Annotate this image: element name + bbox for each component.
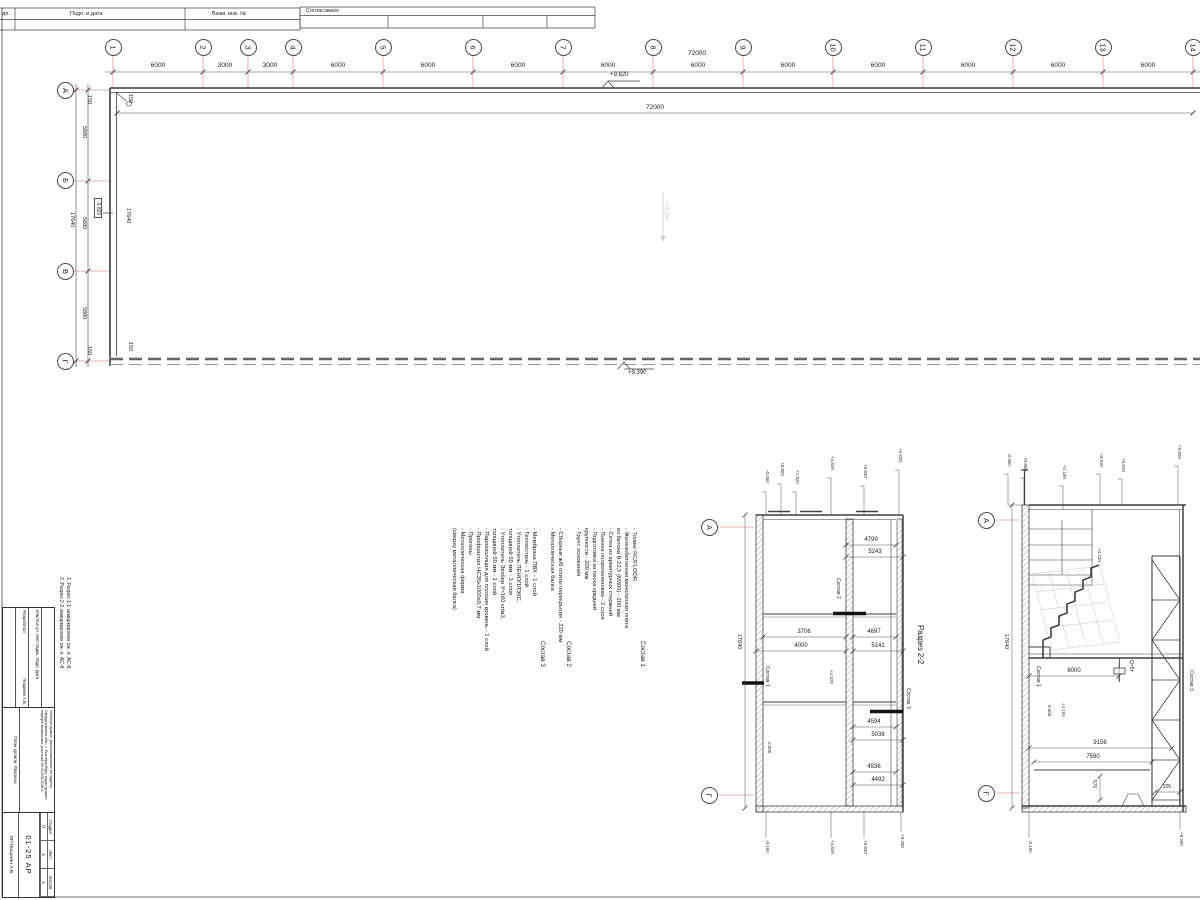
title-block-right: Стадия Лист Листов П 5 6 01-25 АР ИП Пищ…	[3, 813, 54, 897]
section1-vdim: 17640	[736, 634, 742, 649]
dim-label: 6000	[691, 62, 705, 69]
section2-axis-bubble-g: Г	[978, 785, 995, 802]
elevation-label: +5.820	[863, 840, 868, 854]
stamp-agreed-label: Согласовано	[306, 8, 339, 14]
dim-label: 570	[1091, 780, 1097, 788]
dim-label: 5038	[871, 732, 884, 738]
elevation-label: -0.450	[765, 470, 770, 483]
elevation-label: +0.850	[1023, 457, 1028, 471]
elevation-label: -0.450	[1007, 453, 1012, 466]
dim-label: 3706	[797, 629, 810, 635]
dim-label: 4492	[871, 777, 884, 783]
elevation-label: -0.150	[1028, 840, 1033, 853]
dim-offset: 150	[86, 346, 92, 355]
sheet-title: План кровли. Разрезы	[3, 708, 19, 812]
plan-building-outline	[110, 88, 1200, 366]
axis-bubble-14: 14	[1185, 39, 1200, 56]
dim-total-inner: 72000	[646, 104, 664, 111]
sheets-label: Листов	[47, 869, 54, 897]
composition-body-3: - Мембрана ПВХ - 1 слой - Геотекстиль - …	[450, 528, 538, 780]
composition-ref: Состав 3	[905, 688, 911, 709]
elevation-label: 0.000	[1047, 705, 1052, 716]
stage-value: П	[40, 813, 47, 841]
elevation-label: +4.820	[1099, 453, 1104, 467]
stamp-vzam-label: Взам. инв. №	[212, 11, 246, 17]
elevation-label: +1.820	[795, 470, 800, 484]
dim-total-top: 72000	[688, 50, 706, 57]
composition-legend: Состав 1 - Топинг RC/FLOOR - Железобетон…	[428, 528, 648, 780]
composition-title-1: Состав 1	[638, 528, 646, 780]
dim-label: 4936	[867, 764, 880, 770]
elevation-label: +1.104	[1061, 703, 1066, 717]
composition-ref: Состав 1	[764, 666, 770, 687]
elevation-label: +4.220	[1097, 548, 1102, 562]
title-block-revision-table: Изм Кол.уч. Лист №док. Подп. Дата Разраб…	[3, 608, 54, 708]
title-block-empty-row	[3, 608, 15, 707]
axis-bubble-v: В	[57, 263, 74, 280]
axis-bubble-b: Б	[57, 172, 74, 189]
title-block-developer-row: Разработал Пищикян А.В.	[15, 608, 28, 707]
general-notes: 1. Разрез 1-1 замаркирован см. л. АС-8. …	[56, 577, 71, 727]
sheets-value: 6	[40, 869, 47, 897]
title-block-empty-row	[41, 608, 54, 707]
section2-vdim: 17640	[1003, 634, 1009, 649]
dim-label: 3000	[263, 62, 277, 69]
plan-elevation-marks	[103, 81, 654, 369]
dim-label: 4697	[867, 629, 880, 635]
elevation-label: +9.390	[1179, 832, 1184, 846]
composition-ref: Состав 1	[1035, 666, 1041, 687]
project-description: «Жилые дома», расположенные по адресу: С…	[19, 708, 54, 812]
sheet-value: 5	[40, 841, 47, 869]
dim-label: 3000	[218, 62, 232, 69]
dim-label: 6000	[781, 62, 795, 69]
dim-label: 205	[1163, 784, 1171, 790]
axis-bubble-a: А	[57, 82, 74, 99]
composition-title-2: Состав 2	[564, 528, 572, 780]
elevation-label-left: -3.820	[94, 198, 102, 218]
axis-bubble-11: 11	[915, 39, 932, 56]
company-name: ИП Пищикян А.В.	[3, 813, 18, 897]
elevation-label: +9.820	[898, 448, 903, 462]
dim-label: 9156	[1093, 740, 1106, 746]
elevation-label: +5.820	[1121, 458, 1126, 472]
axis-bubble-g: Г	[57, 353, 74, 370]
composition-ref: Состав 2	[835, 578, 841, 599]
sheet-label: Лист	[47, 841, 54, 869]
dim-label: 6000	[511, 62, 525, 69]
axis-bubble-2: 2	[195, 39, 212, 56]
title-block-header-row: Изм Кол.уч. Лист №док. Подп. Дата	[28, 608, 41, 707]
axis-bubble-9: 9	[735, 39, 752, 56]
elevation-label: 0.000	[767, 742, 772, 753]
axis-bubble-12: 12	[1005, 39, 1022, 56]
dim-label: 6000	[871, 62, 885, 69]
section1-axis-bubble-g: Г	[701, 787, 718, 804]
dim-label: 6000	[151, 62, 165, 69]
dim-label: 4799	[864, 537, 877, 543]
stamp-cut-label: дл.	[2, 11, 10, 17]
elevation-label-bottom: +9.390	[628, 370, 647, 376]
elevation-label: -0.150	[765, 840, 770, 853]
note-line: 2. Разрез 2-2 замаркирован см. л. АС-8.	[57, 577, 64, 727]
plan-dim-lines	[74, 70, 1200, 368]
dim-label: 5880	[81, 217, 87, 229]
dim-offset: 150	[127, 342, 133, 351]
axis-bubble-7: 7	[555, 39, 572, 56]
dim-label: 5243	[868, 549, 881, 555]
section1-title: Разрез 2-2	[916, 625, 925, 664]
axis-bubble-4: 4	[285, 39, 302, 56]
dim-label: 6000	[1051, 62, 1065, 69]
stage-sheet-table: Стадия Лист Листов П 5 6	[39, 813, 54, 897]
title-block-project-cell: «Жилые дома», расположенные по адресу: С…	[3, 708, 54, 813]
dim-label: 5880	[81, 126, 87, 138]
axis-bubble-5: 5	[375, 39, 392, 56]
composition-body-2: - Сборные ж/б плиты перекрытия - 220 мм …	[548, 528, 564, 780]
elevation-label: +9.390	[900, 834, 905, 848]
dim-label: 6000	[1141, 62, 1155, 69]
dim-label: 7590	[1086, 754, 1099, 760]
dim-label: 6000	[331, 62, 345, 69]
elevation-label: +9.820	[1177, 445, 1182, 459]
dim-total-left-inner: 17640	[125, 208, 131, 223]
dim-label: 6000	[961, 62, 975, 69]
axis-bubble-6: 6	[465, 39, 482, 56]
dim-label: 4594	[867, 719, 880, 725]
dim-label: 6000	[421, 62, 435, 69]
title-block: Изм Кол.уч. Лист №док. Подп. Дата Разраб…	[2, 607, 55, 898]
axis-bubble-10: 10	[825, 39, 842, 56]
elevation-label: +0.850	[780, 462, 785, 476]
section2-axis-bubble-a: А	[978, 512, 995, 529]
dim-label: 6000	[601, 62, 615, 69]
axis-bubble-3: 3	[240, 39, 257, 56]
elevation-label: +2.100	[1062, 465, 1067, 479]
axis-bubble-13: 13	[1095, 39, 1112, 56]
drawing-sheet: дл. Подп. и дата Взам. инв. № Согласован…	[0, 0, 1200, 900]
axis-bubble-1: 1	[105, 39, 122, 56]
stage-label: Стадия	[47, 813, 54, 841]
dim-label: 6000	[1067, 668, 1080, 674]
stamp-sign-date-label: Подп. и дата	[70, 11, 102, 17]
elevation-label-top: +9.820	[610, 72, 629, 78]
crane-capacity-label: Q=5т	[1128, 660, 1134, 672]
dim-label: 4000	[794, 643, 807, 649]
dim-total-left: 17640	[69, 212, 75, 227]
composition-title-3: Состав 3	[538, 528, 546, 780]
elevation-label: +4.320	[829, 670, 834, 684]
slope-label: i=2,5%	[663, 203, 669, 220]
note-line: 1. Разрез 1-1 замаркирован см. л. АС-8.	[64, 577, 71, 727]
composition-ref: Состав 3	[1188, 670, 1194, 691]
elevation-label: +5.820	[863, 464, 868, 478]
axis-bubble-8: 8	[645, 39, 662, 56]
document-code: 01-25 АР	[18, 813, 39, 897]
dim-offset: 150	[86, 95, 92, 104]
dim-label: 5141	[871, 643, 884, 649]
elevation-label: +4.820	[830, 456, 835, 470]
composition-body-1: - Топинг RC/FLOOR - Железобетонная монол…	[574, 528, 638, 780]
dim-label: 5880	[81, 307, 87, 319]
section1-axis-bubble-a: А	[701, 519, 718, 536]
dim-offset: 150	[127, 94, 133, 103]
elevation-label: +4.820	[830, 840, 835, 854]
